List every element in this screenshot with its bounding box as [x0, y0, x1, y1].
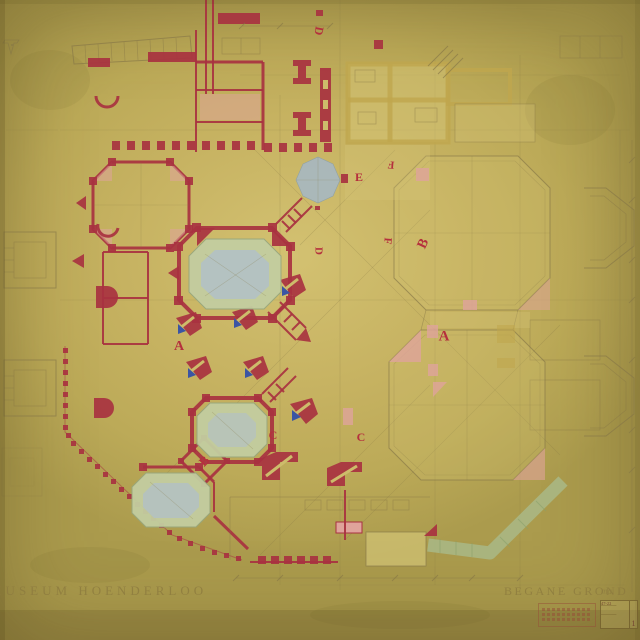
- architect-monogram: [3, 40, 19, 54]
- octagon-room-west: [76, 158, 193, 252]
- pool-2: [197, 403, 267, 457]
- top-right-service-block: [348, 46, 535, 142]
- pools: [132, 157, 348, 527]
- plan-title-left: MUSEUM HOENDERLOO: [0, 583, 207, 599]
- annotation-box: [538, 603, 596, 627]
- top-wing: [88, 0, 383, 152]
- pool-1: [189, 239, 281, 309]
- stamp-number: 47-22: [601, 601, 616, 606]
- stamp-sheet: 1: [630, 601, 637, 628]
- annotation-line: [542, 618, 592, 621]
- right-wing-octagon-rooms: [345, 145, 550, 480]
- pool-3: [132, 473, 210, 527]
- left-porches: [2, 232, 56, 496]
- stamp-rows: 47-22: [601, 601, 630, 628]
- west-rooms: [72, 252, 148, 418]
- number-stamp: 47-22 1: [600, 600, 638, 629]
- stamp-row: [601, 620, 616, 625]
- annotation-line: [542, 608, 592, 611]
- floor-plan-drawing: [0, 0, 640, 640]
- annotation-line: [542, 613, 592, 616]
- central-piers: [264, 60, 332, 152]
- handwritten-note: ma.: [601, 586, 614, 596]
- stamp-row: [601, 610, 616, 615]
- terrace-steps: [366, 481, 563, 566]
- blueprint-scan: AABBCCDDEFF MUSEUM HOENDERLOO BEGANE GRO…: [0, 0, 640, 640]
